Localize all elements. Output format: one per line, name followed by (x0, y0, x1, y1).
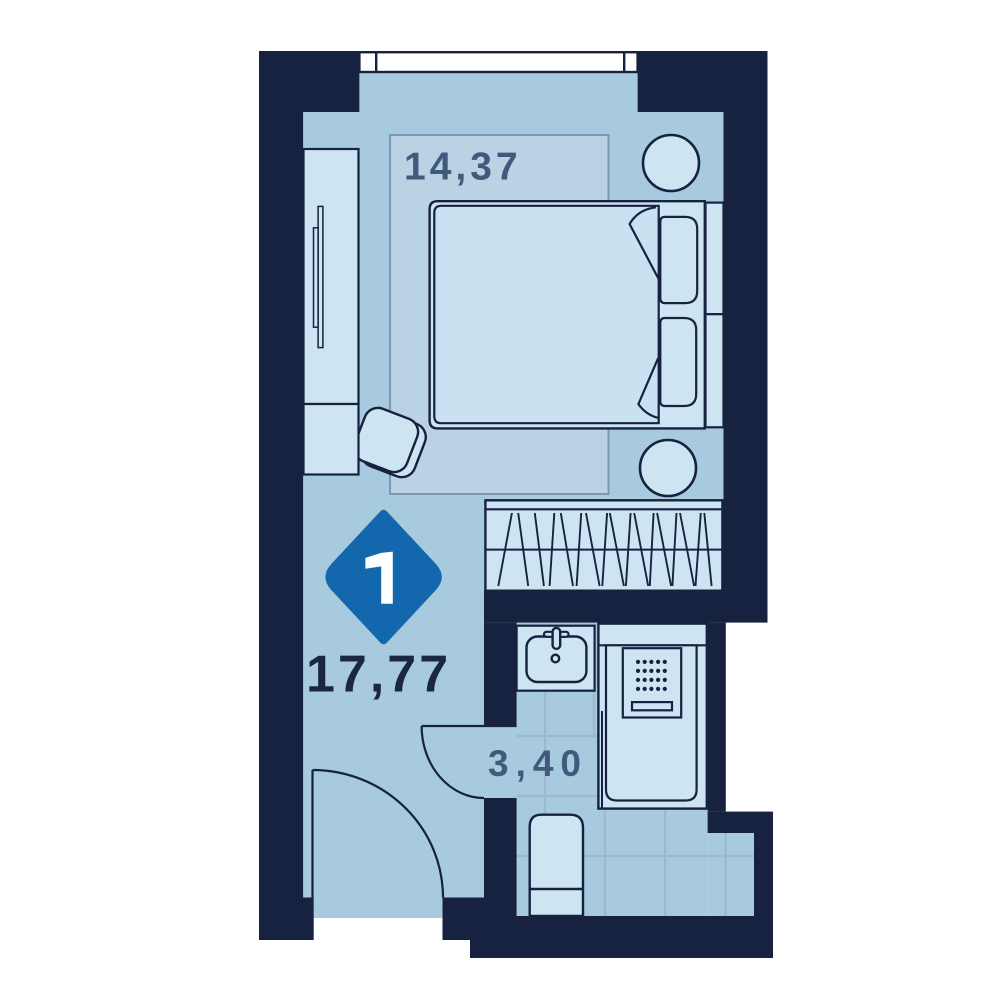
svg-text:3,40: 3,40 (488, 743, 588, 784)
svg-text:14,37: 14,37 (404, 146, 522, 189)
svg-text:17,77: 17,77 (306, 646, 451, 704)
